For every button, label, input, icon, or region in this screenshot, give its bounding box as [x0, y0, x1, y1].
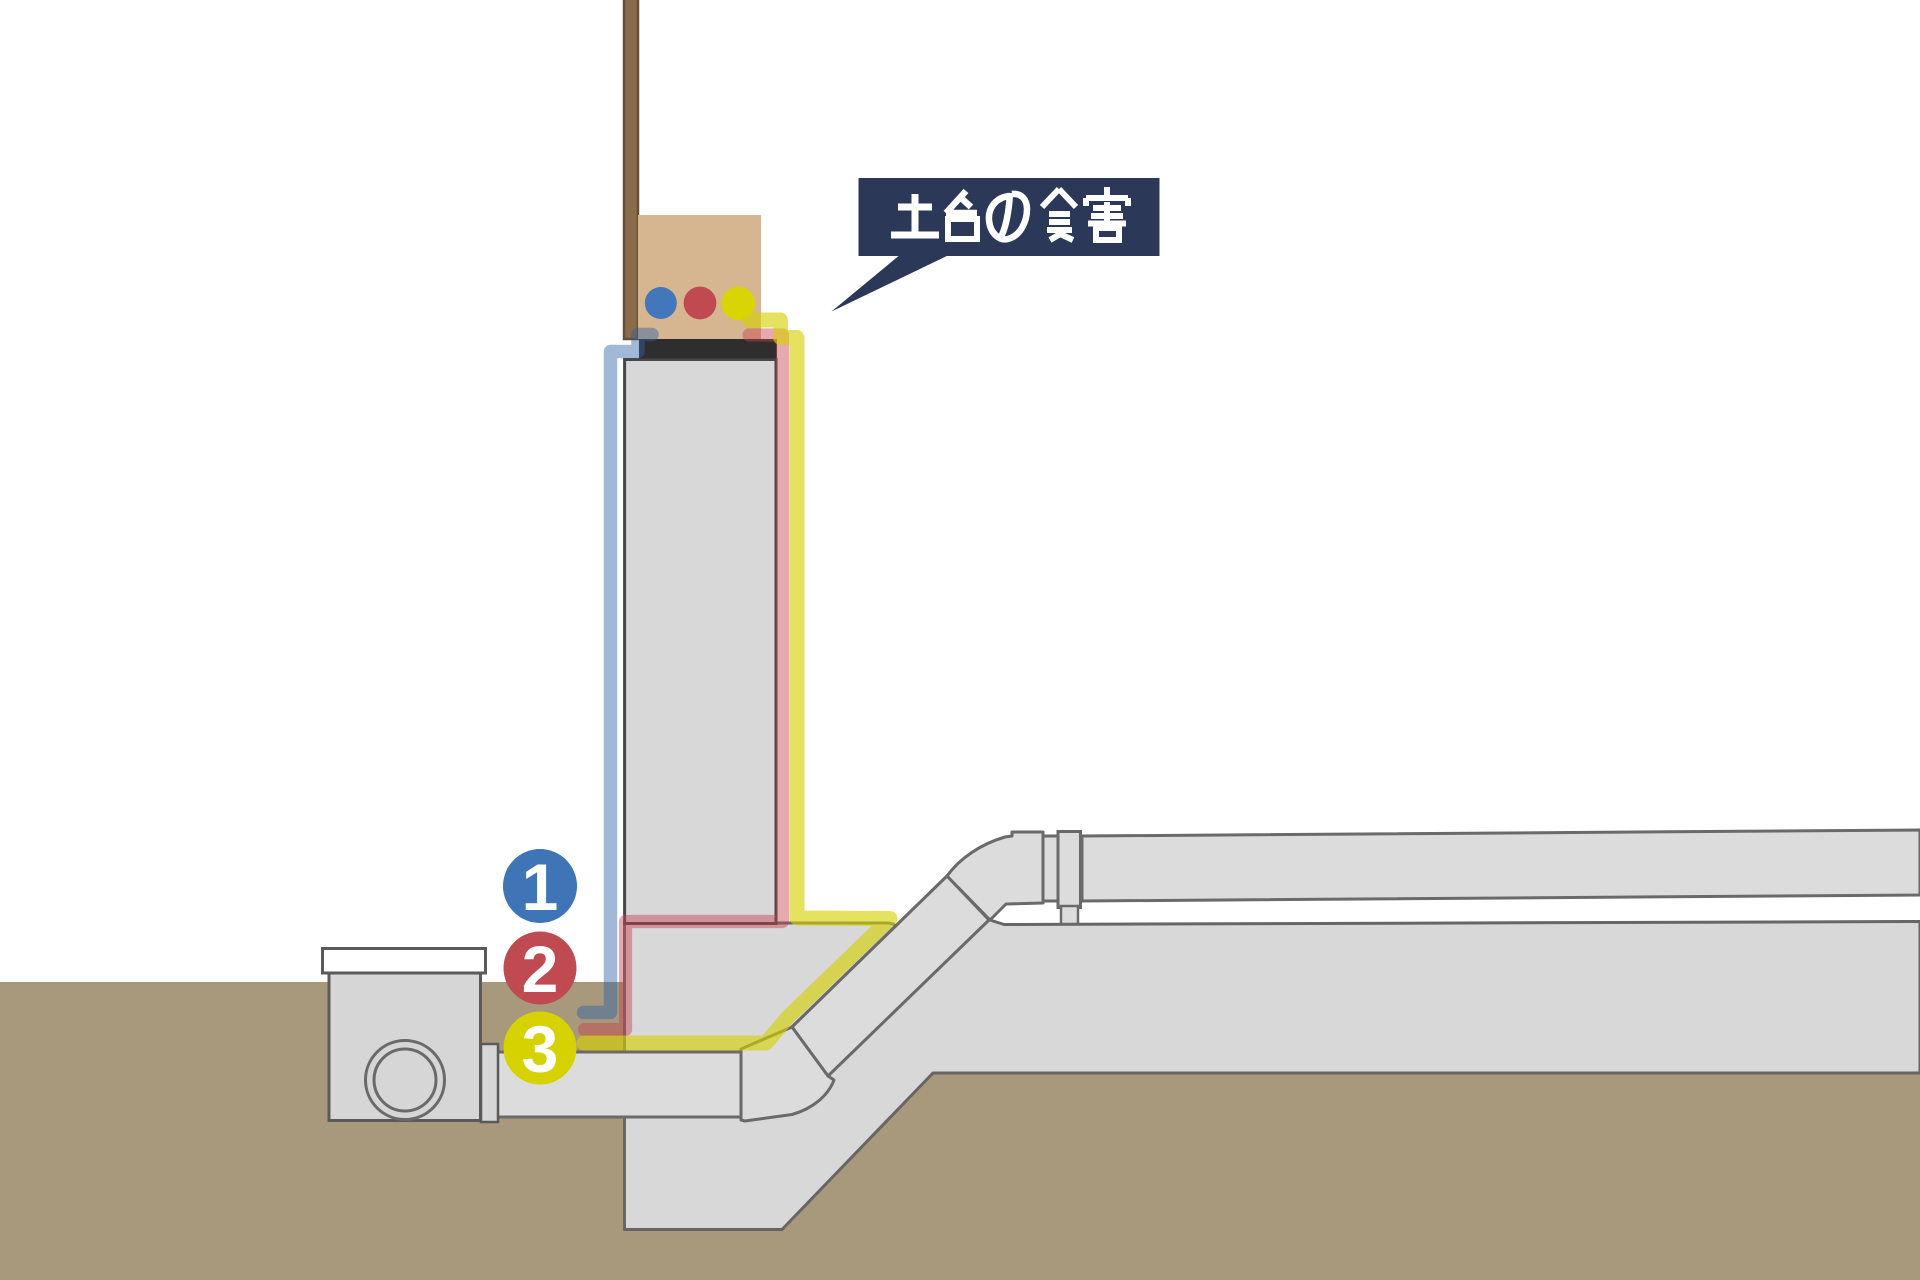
svg-text:1: 1 — [522, 850, 559, 924]
svg-text:2: 2 — [522, 932, 559, 1006]
svg-text:3: 3 — [522, 1012, 559, 1086]
